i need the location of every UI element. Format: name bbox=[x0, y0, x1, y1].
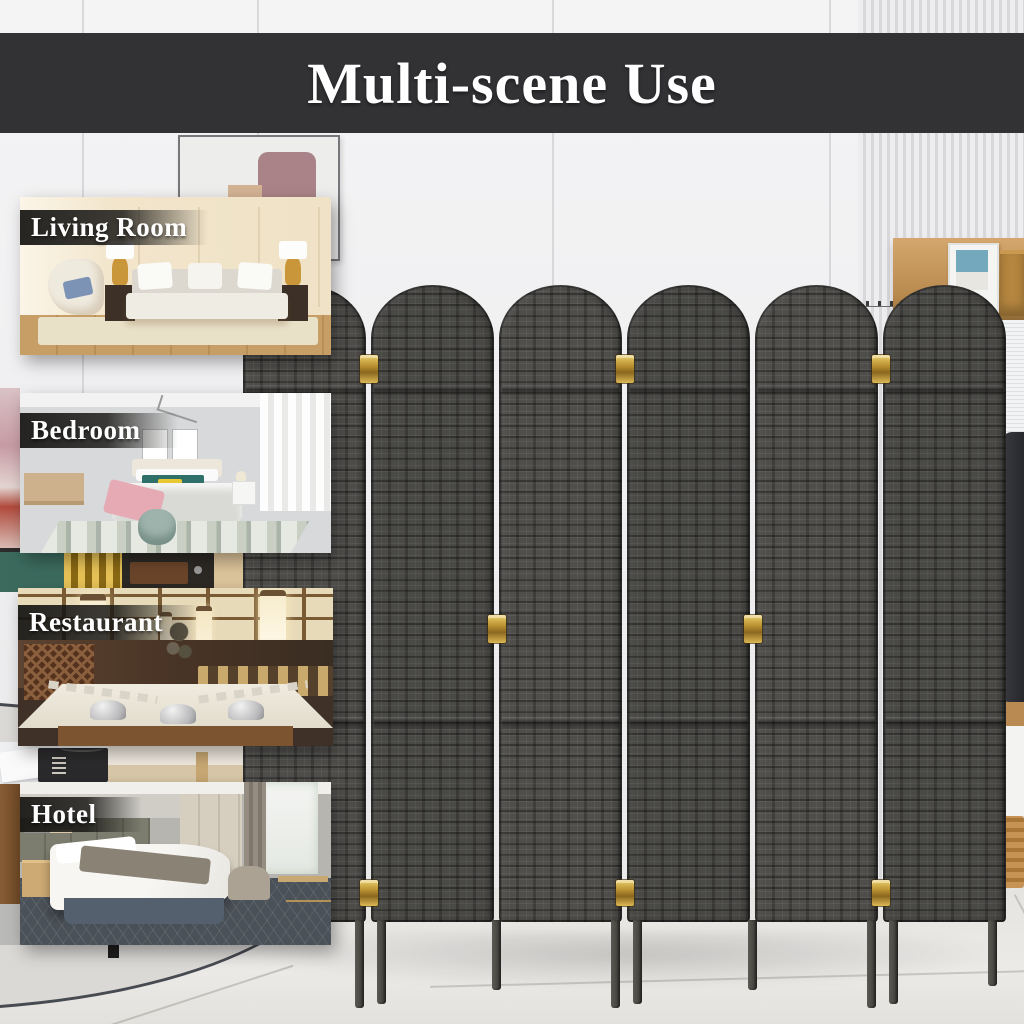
gold-hinge bbox=[488, 615, 506, 643]
scene-label-restaurant: Restaurant bbox=[18, 605, 198, 640]
wood-cabinet-fragment bbox=[0, 784, 20, 904]
wood-leg-fragment bbox=[214, 548, 243, 592]
black-book bbox=[38, 748, 108, 782]
lr-sofa-pillow bbox=[237, 262, 273, 290]
wood-table-leg bbox=[196, 752, 208, 784]
gold-hinge bbox=[616, 880, 634, 906]
gold-hinge bbox=[360, 355, 378, 383]
restaurant-photo: Restaurant bbox=[18, 588, 333, 746]
br-sideboard bbox=[24, 473, 84, 505]
bedroom-photo: Bedroom bbox=[20, 393, 331, 553]
lr-sofa-pillow bbox=[137, 262, 173, 290]
panel-leg bbox=[988, 920, 997, 986]
panel-leg bbox=[611, 920, 620, 1008]
rs-cloche bbox=[160, 704, 196, 724]
panel-leg bbox=[867, 920, 876, 1008]
panel-bottom-rail bbox=[374, 717, 491, 729]
banner-title: Multi-scene Use bbox=[307, 50, 717, 117]
panel-bottom-rail bbox=[630, 717, 747, 729]
room-divider bbox=[243, 283, 1009, 1010]
scene-label-hotel: Hotel bbox=[20, 797, 142, 832]
panel-top-rail bbox=[886, 385, 1003, 395]
lr-lamp-shade bbox=[279, 241, 307, 259]
papers bbox=[0, 747, 42, 782]
ht-armchair bbox=[228, 866, 270, 900]
panel-top-rail bbox=[374, 385, 491, 395]
teal-painting bbox=[0, 548, 64, 592]
panel-top-rail bbox=[630, 385, 747, 395]
scene-label-bedroom: Bedroom bbox=[20, 413, 178, 448]
cabinet-base-fragment bbox=[0, 904, 20, 945]
hotel-photo: Hotel bbox=[20, 782, 331, 945]
gold-hinge bbox=[744, 615, 762, 643]
panel-bottom-rail bbox=[502, 717, 619, 729]
panel-leg bbox=[377, 920, 386, 1004]
product-collage-image: Multi-scene Use Living Room bbox=[0, 0, 1024, 1024]
lr-sofa-pillow bbox=[188, 263, 222, 289]
lr-sofa-seat bbox=[126, 293, 288, 319]
ht-side-table bbox=[278, 876, 328, 882]
panel-bottom-rail bbox=[886, 717, 1003, 729]
gold-hinge bbox=[872, 880, 890, 906]
gold-hinge bbox=[616, 355, 634, 383]
stool-leg bbox=[108, 945, 119, 958]
living-room-photo: Living Room bbox=[20, 197, 331, 355]
ht-curtain bbox=[244, 782, 266, 878]
radio-speaker bbox=[130, 562, 188, 584]
divider-panel bbox=[499, 285, 622, 922]
divider-panel bbox=[371, 285, 494, 922]
br-pouf bbox=[138, 509, 176, 545]
book-glyphs bbox=[52, 756, 66, 774]
br-window-curtain bbox=[260, 393, 331, 511]
desk-scene-fragment bbox=[0, 742, 243, 784]
panel-top-rail bbox=[758, 385, 875, 395]
gold-hinge bbox=[360, 880, 378, 906]
panel-bottom-rail bbox=[758, 717, 875, 729]
divider-panel bbox=[627, 285, 750, 922]
panel-leg bbox=[633, 920, 642, 1004]
gold-hinge bbox=[872, 355, 890, 383]
ht-bed-base bbox=[64, 898, 224, 924]
gold-slats bbox=[64, 548, 122, 592]
rs-table-base bbox=[58, 726, 293, 746]
scene-label-living-room: Living Room bbox=[20, 210, 208, 245]
panel-leg bbox=[492, 920, 501, 990]
wood-table-fragment bbox=[108, 742, 243, 784]
panel-leg bbox=[889, 920, 898, 1004]
lr-lamp bbox=[112, 257, 128, 285]
panel-top-rail bbox=[502, 385, 619, 395]
lr-lamp bbox=[285, 257, 301, 285]
sideboard-scene-fragment bbox=[0, 548, 243, 592]
panel-leg bbox=[355, 920, 364, 1008]
banner: Multi-scene Use bbox=[0, 33, 1024, 133]
abstract-art-fragment bbox=[0, 388, 20, 553]
br-lamp bbox=[236, 471, 246, 481]
panel-leg bbox=[748, 920, 757, 990]
radio-knob bbox=[194, 566, 202, 574]
ht-window bbox=[258, 782, 318, 874]
br-nightstand bbox=[232, 481, 256, 505]
lr-rug bbox=[38, 317, 318, 345]
divider-panel bbox=[883, 285, 1006, 922]
divider-panel bbox=[755, 285, 878, 922]
rs-cloche bbox=[228, 700, 264, 720]
rs-cloche bbox=[90, 700, 126, 720]
